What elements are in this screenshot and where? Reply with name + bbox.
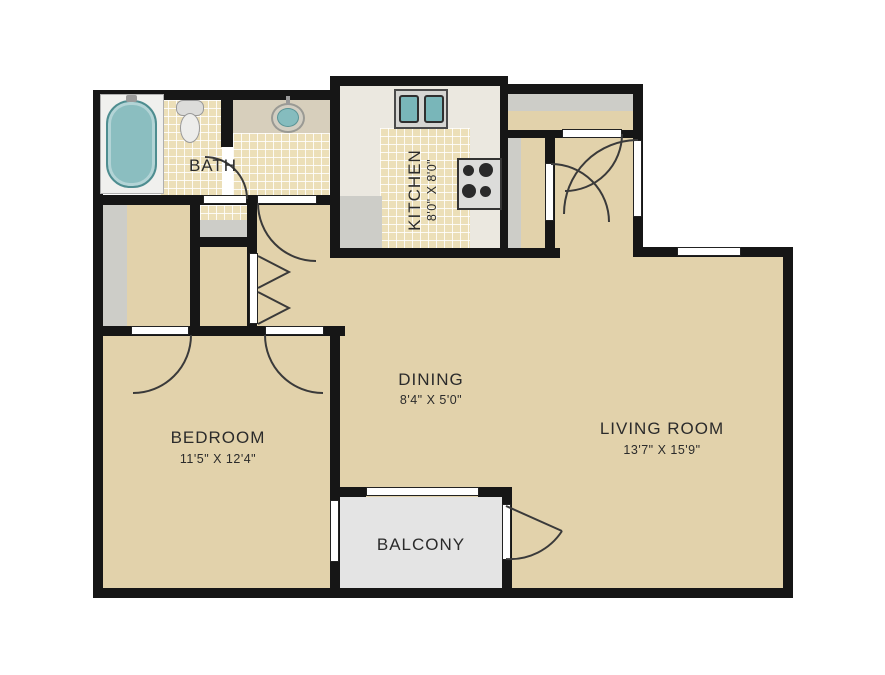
- bedroom-door-arc: [265, 335, 323, 393]
- bifold-door-icon-lower: [258, 292, 289, 324]
- dining-label: DINING: [398, 370, 464, 390]
- bedroom-label: BEDROOM: [171, 428, 266, 448]
- walkin-door-arc: [133, 335, 191, 393]
- kitchen-dims: 8'0" X 8'0": [425, 149, 439, 231]
- kitchen-name: KITCHEN: [405, 149, 425, 231]
- bedroom-dims: 11'5" X 12'4": [180, 452, 256, 466]
- balcony-door-arc: [506, 531, 562, 559]
- kitchen-label: KITCHEN 8'0" X 8'0": [405, 149, 439, 231]
- balcony-label: BALCONY: [377, 535, 465, 555]
- dining-dims: 8'4" X 5'0": [400, 393, 462, 407]
- floor-plan: BATH KITCHEN 8'0" X 8'0" DINING 8'4" X 5…: [0, 0, 885, 675]
- balcony-door-leaf: [506, 506, 562, 531]
- bath-label: BATH: [189, 156, 237, 176]
- pantry-door-arc: [551, 164, 609, 222]
- living-room-dims: 13'7" X 15'9": [623, 443, 700, 457]
- bifold-door-icon-upper: [258, 256, 289, 288]
- living-room-label: LIVING ROOM: [600, 419, 724, 439]
- door-swing-arcs: [0, 0, 885, 675]
- bath-door-arc: [258, 203, 316, 261]
